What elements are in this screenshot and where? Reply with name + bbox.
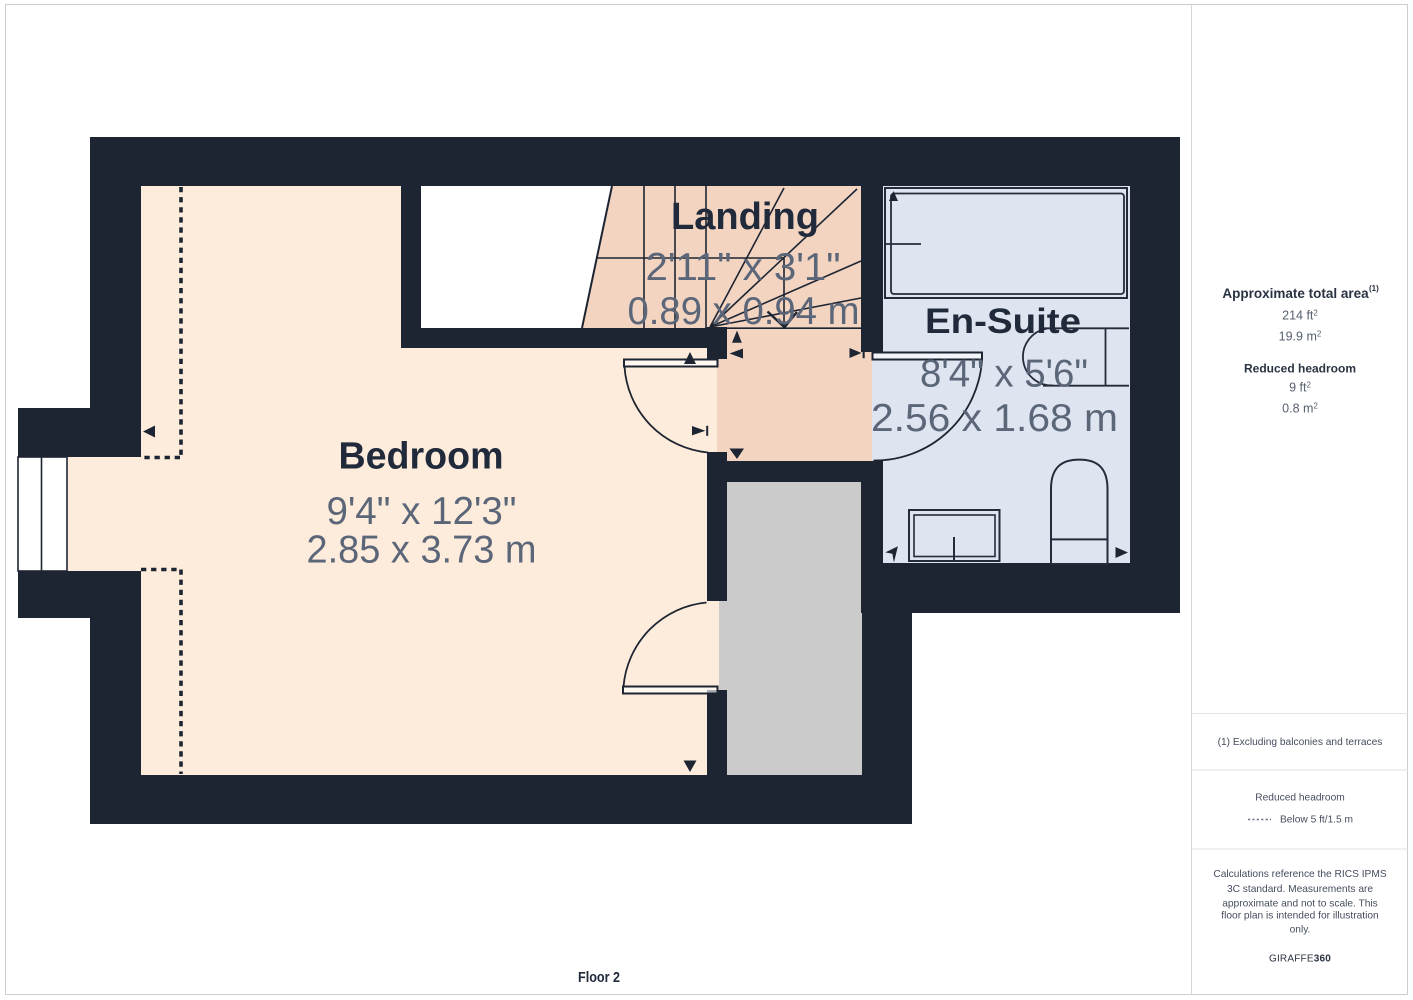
svg-text:9 ft2: 9 ft2 (1289, 381, 1311, 395)
svg-text:8'4" x 5'6": 8'4" x 5'6" (920, 353, 1088, 396)
svg-text:En-Suite: En-Suite (925, 302, 1081, 341)
svg-text:only.: only. (1290, 925, 1311, 936)
svg-text:9'4" x 12'3": 9'4" x 12'3" (327, 490, 517, 533)
svg-text:Reduced headroom: Reduced headroom (1255, 793, 1344, 804)
svg-text:Below 5 ft/1.5 m: Below 5 ft/1.5 m (1280, 815, 1353, 826)
svg-text:Calculations reference the RIC: Calculations reference the RICS IPMS (1213, 869, 1386, 880)
svg-text:(1): (1) (1369, 284, 1379, 293)
svg-text:2'11" x 3'1": 2'11" x 3'1" (646, 246, 841, 289)
svg-text:214 ft2: 214 ft2 (1282, 309, 1318, 323)
svg-text:GIRAFFE360: GIRAFFE360 (1269, 953, 1331, 964)
svg-text:Landing: Landing (671, 196, 819, 238)
svg-text:3C standard. Measurements are: 3C standard. Measurements are (1227, 884, 1373, 895)
svg-text:floor plan is intended for ill: floor plan is intended for illustration (1221, 911, 1378, 922)
svg-text:Reduced headroom: Reduced headroom (1244, 361, 1356, 375)
svg-text:2.56 x 1.68 m: 2.56 x 1.68 m (871, 397, 1118, 440)
svg-text:0.8 m2: 0.8 m2 (1282, 401, 1318, 415)
svg-text:approximate and not to scale.: approximate and not to scale. This (1222, 899, 1378, 910)
svg-text:0.89 x 0.94 m: 0.89 x 0.94 m (628, 290, 860, 333)
svg-text:19.9 m2: 19.9 m2 (1279, 329, 1322, 343)
svg-text:2.85 x 3.73 m: 2.85 x 3.73 m (307, 528, 537, 571)
svg-text:Bedroom: Bedroom (339, 436, 504, 478)
svg-text:Floor 2: Floor 2 (578, 970, 620, 986)
svg-text:(1) Excluding balconies and te: (1) Excluding balconies and terraces (1218, 737, 1383, 748)
svg-text:Approximate total area: Approximate total area (1222, 286, 1369, 301)
